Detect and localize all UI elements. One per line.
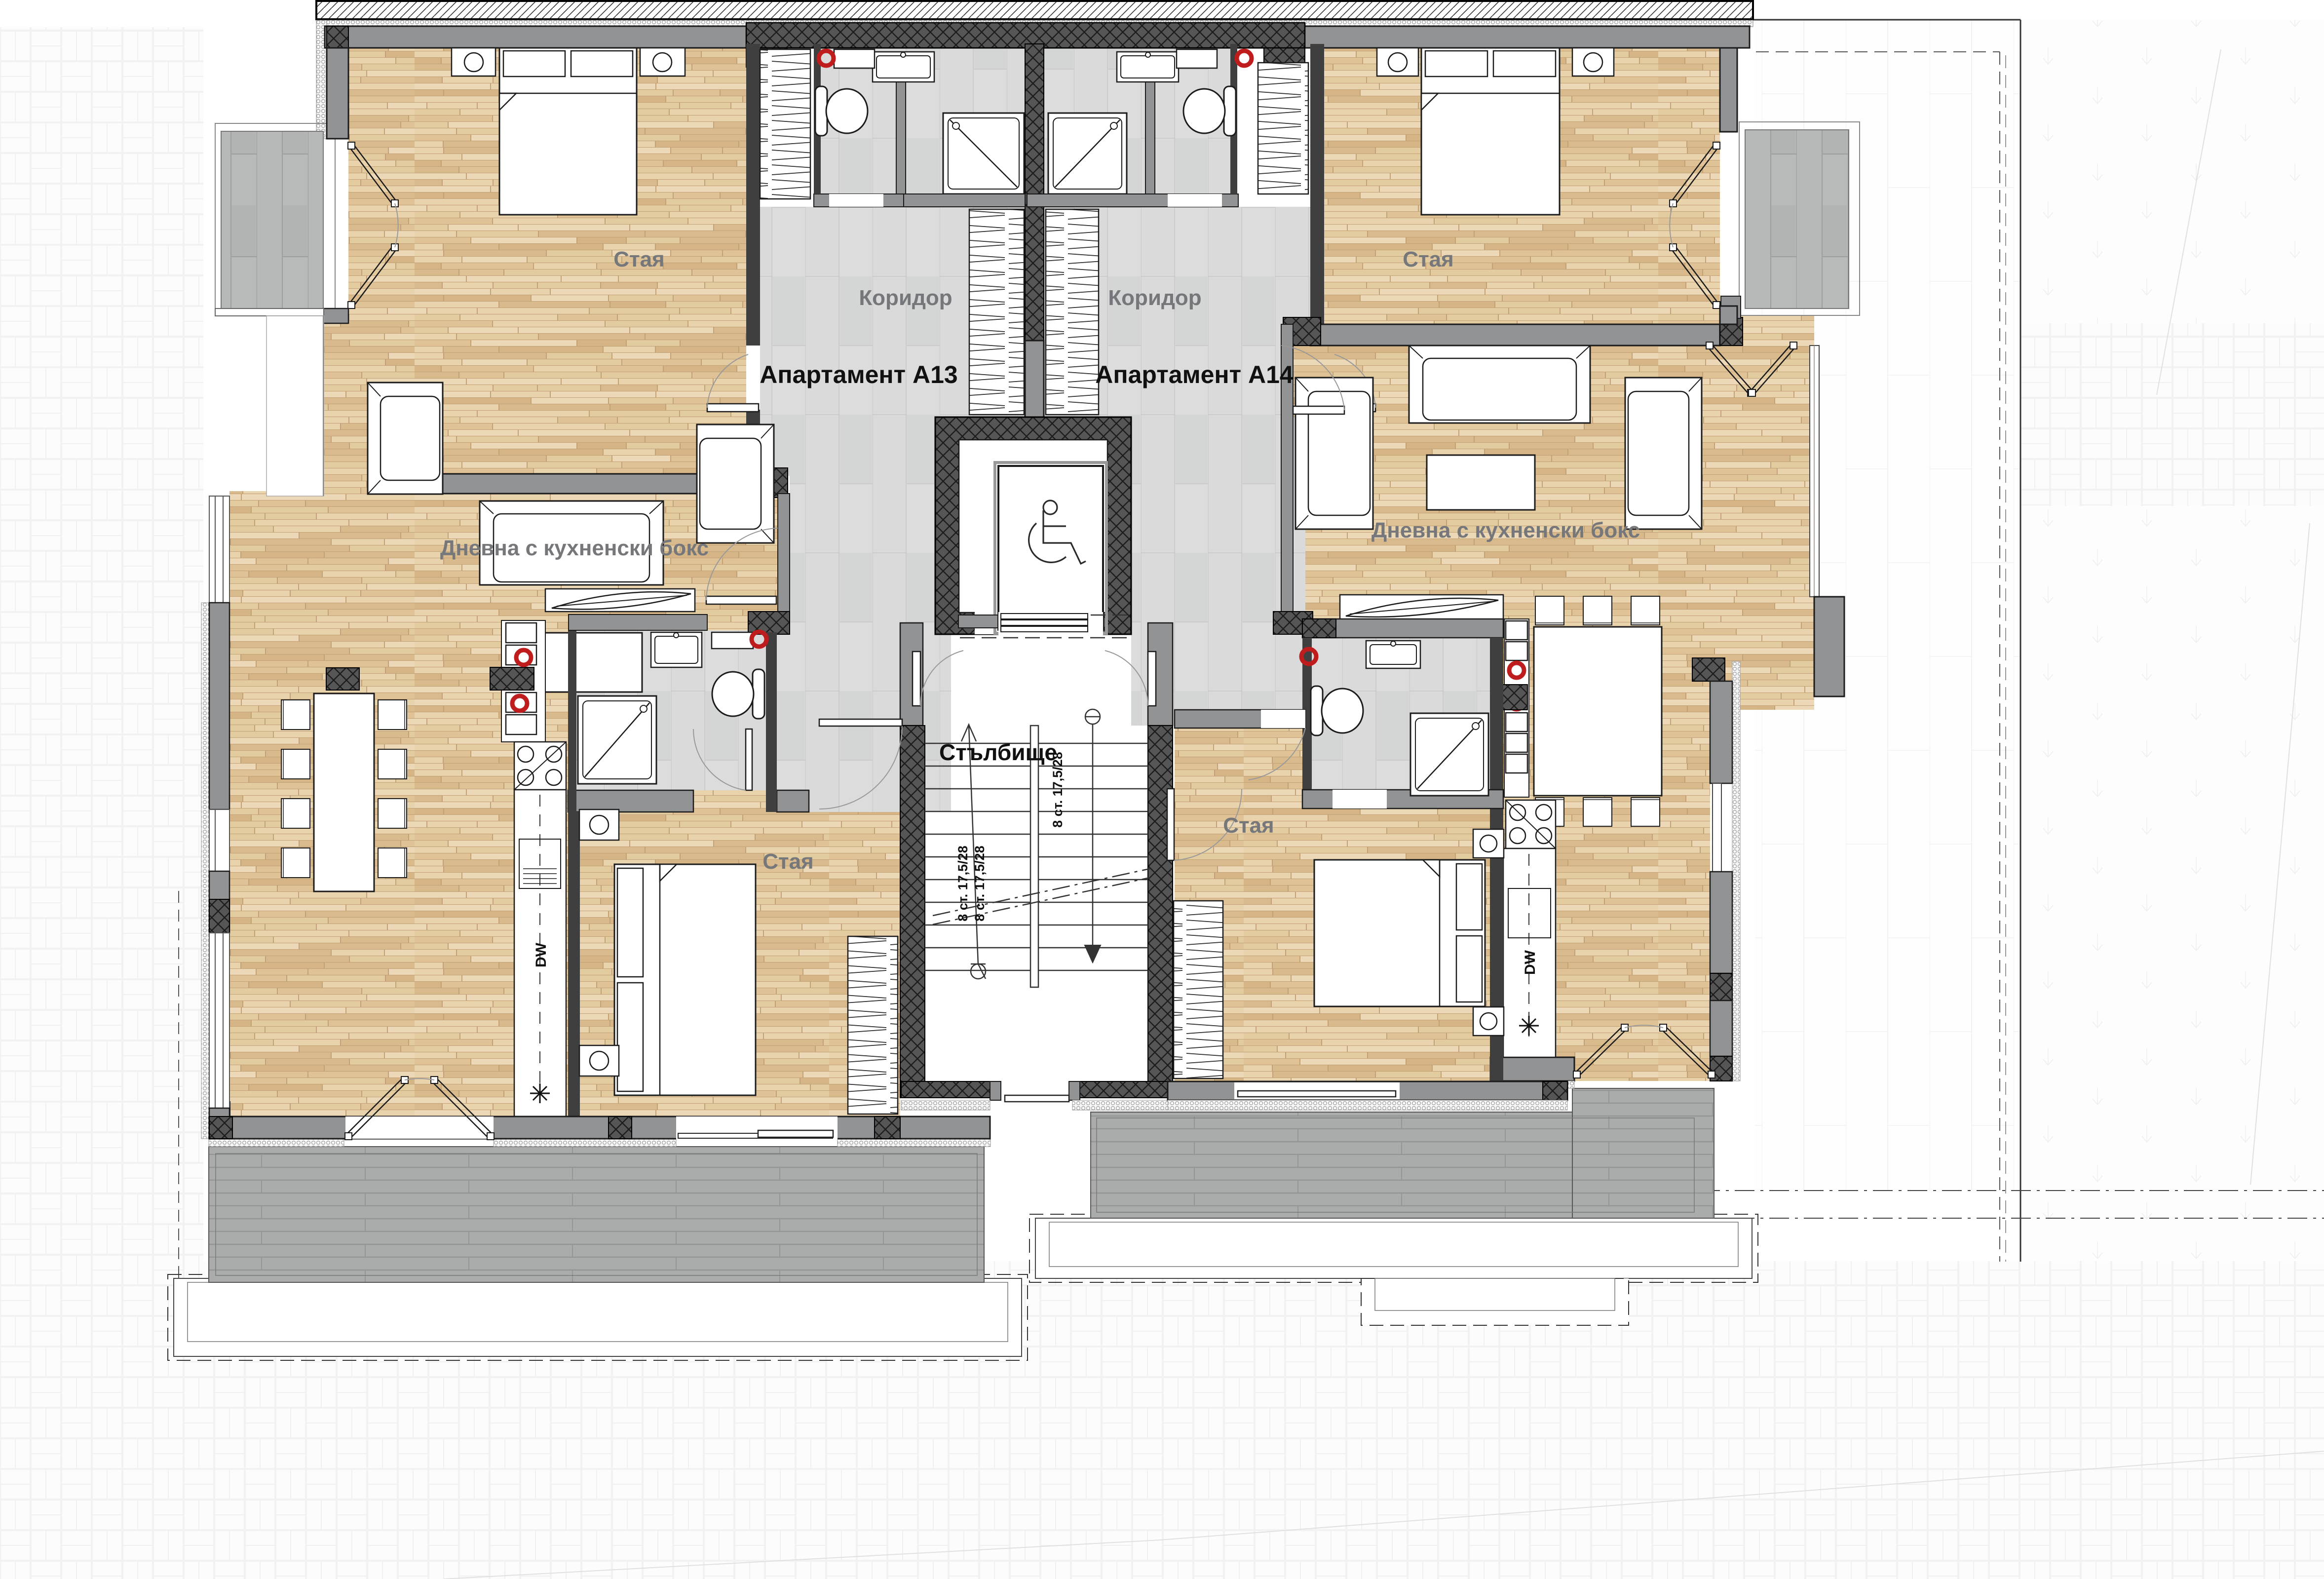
svg-text:DW: DW — [533, 942, 549, 967]
svg-text:DW: DW — [1522, 950, 1538, 975]
svg-text:Стая: Стая — [1223, 813, 1274, 838]
svg-text:Апартамент А14: Апартамент А14 — [1095, 361, 1294, 388]
svg-text:Дневна с кухненски бокс: Дневна с кухненски бокс — [440, 536, 709, 560]
svg-text:8 ст. 17,5/28: 8 ст. 17,5/28 — [972, 846, 987, 921]
svg-text:Дневна с кухненски бокс: Дневна с кухненски бокс — [1372, 518, 1640, 542]
svg-text:Стая: Стая — [613, 247, 664, 271]
svg-text:Стая: Стая — [762, 849, 813, 874]
svg-text:Коридор: Коридор — [859, 286, 952, 310]
svg-text:Стълбище: Стълбище — [939, 739, 1057, 765]
svg-text:Коридор: Коридор — [1108, 286, 1201, 310]
svg-text:Апартамент А13: Апартамент А13 — [760, 361, 957, 388]
svg-text:Стая: Стая — [1403, 247, 1453, 271]
svg-text:8 ст. 17,5/28: 8 ст. 17,5/28 — [955, 846, 970, 921]
